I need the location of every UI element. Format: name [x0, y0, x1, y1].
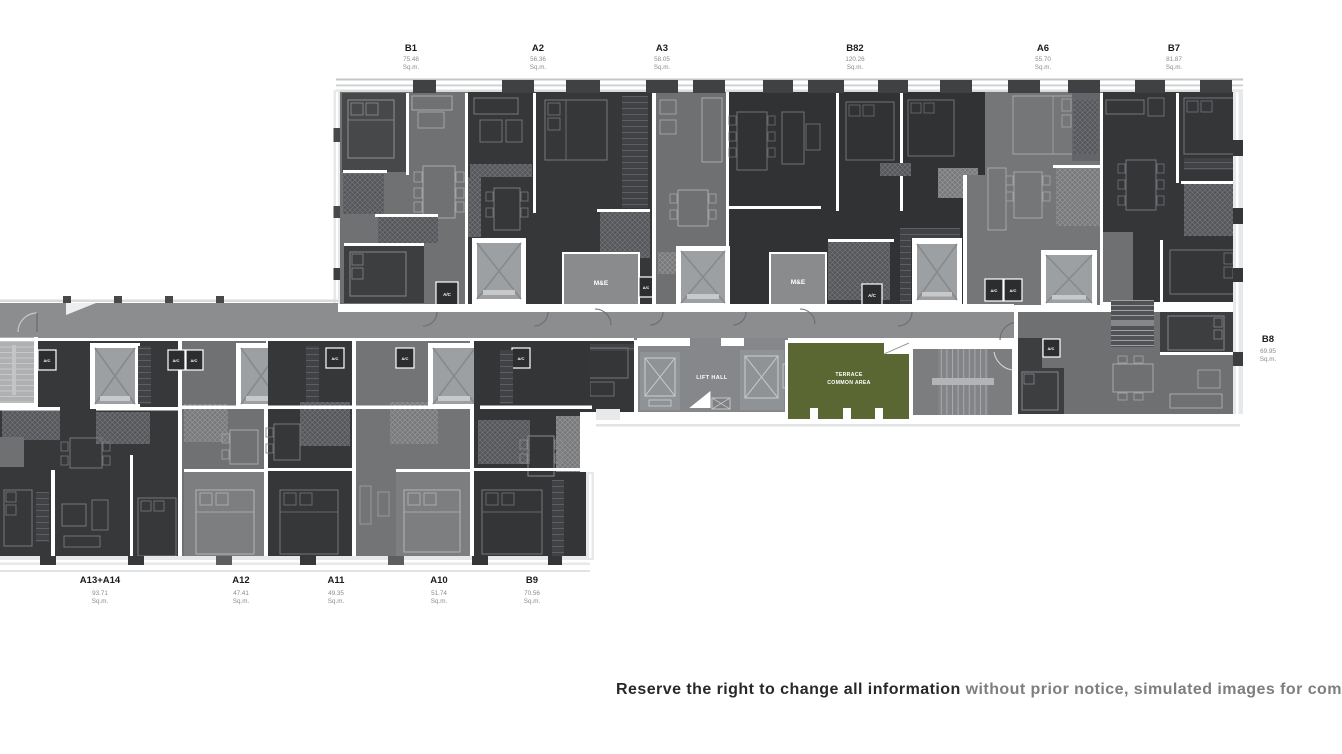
svg-text:LIFT HALL: LIFT HALL: [696, 375, 728, 381]
svg-text:A/C: A/C: [991, 288, 998, 293]
svg-text:A2: A2: [532, 43, 544, 54]
svg-text:TERRACE: TERRACE: [835, 372, 862, 378]
svg-text:49.35: 49.35: [328, 590, 344, 597]
svg-text:B9: B9: [526, 575, 538, 586]
svg-text:A12: A12: [232, 575, 249, 586]
svg-text:70.56: 70.56: [524, 590, 540, 597]
svg-text:Sq.m.: Sq.m.: [847, 64, 864, 71]
svg-text:Reserve the right to change al: Reserve the right to change all informat…: [616, 681, 1342, 698]
svg-text:56.36: 56.36: [530, 56, 546, 63]
svg-text:A/C: A/C: [868, 293, 877, 298]
svg-text:75.48: 75.48: [403, 56, 419, 63]
svg-text:A10: A10: [430, 575, 447, 586]
svg-text:Sq.m.: Sq.m.: [92, 598, 109, 605]
svg-text:Sq.m.: Sq.m.: [233, 598, 250, 605]
svg-text:51.74: 51.74: [431, 590, 447, 597]
svg-text:Sq.m.: Sq.m.: [1166, 64, 1183, 71]
svg-text:93.71: 93.71: [92, 590, 108, 597]
svg-text:M&E: M&E: [791, 279, 806, 286]
svg-text:A/C: A/C: [518, 356, 525, 361]
svg-text:47.41: 47.41: [233, 590, 249, 597]
svg-text:55.70: 55.70: [1035, 56, 1051, 63]
svg-text:A/C: A/C: [1010, 288, 1017, 293]
svg-text:A11: A11: [328, 575, 346, 586]
svg-text:A/C: A/C: [191, 358, 198, 363]
svg-text:A3: A3: [656, 43, 668, 54]
svg-text:A/C: A/C: [173, 358, 180, 363]
svg-text:A/C: A/C: [1048, 346, 1055, 351]
svg-text:Sq.m.: Sq.m.: [403, 64, 420, 71]
svg-text:Sq.m.: Sq.m.: [431, 598, 448, 605]
svg-text:Sq.m.: Sq.m.: [1260, 356, 1277, 363]
svg-text:B1: B1: [405, 43, 418, 54]
svg-text:120.26: 120.26: [845, 56, 865, 63]
svg-text:A/C: A/C: [332, 356, 339, 361]
svg-text:A13+A14: A13+A14: [80, 575, 121, 586]
svg-text:A/C: A/C: [643, 286, 650, 290]
svg-text:69.95: 69.95: [1260, 348, 1276, 355]
svg-text:Sq.m.: Sq.m.: [524, 598, 541, 605]
svg-text:B7: B7: [1168, 43, 1180, 54]
svg-text:Sq.m.: Sq.m.: [530, 64, 547, 71]
svg-text:81.87: 81.87: [1166, 56, 1182, 63]
svg-text:Sq.m.: Sq.m.: [1035, 64, 1052, 71]
svg-text:A6: A6: [1037, 43, 1049, 54]
svg-text:M&E: M&E: [594, 280, 609, 287]
svg-text:A/C: A/C: [402, 356, 409, 361]
svg-text:A/C: A/C: [44, 358, 51, 363]
svg-text:A/C: A/C: [443, 292, 452, 297]
svg-text:Sq.m.: Sq.m.: [328, 598, 345, 605]
svg-text:COMMON AREA: COMMON AREA: [827, 380, 870, 386]
svg-text:B8: B8: [1262, 334, 1274, 345]
svg-text:58.05: 58.05: [654, 56, 670, 63]
svg-text:Sq.m.: Sq.m.: [654, 64, 671, 71]
svg-text:B82: B82: [846, 43, 863, 54]
